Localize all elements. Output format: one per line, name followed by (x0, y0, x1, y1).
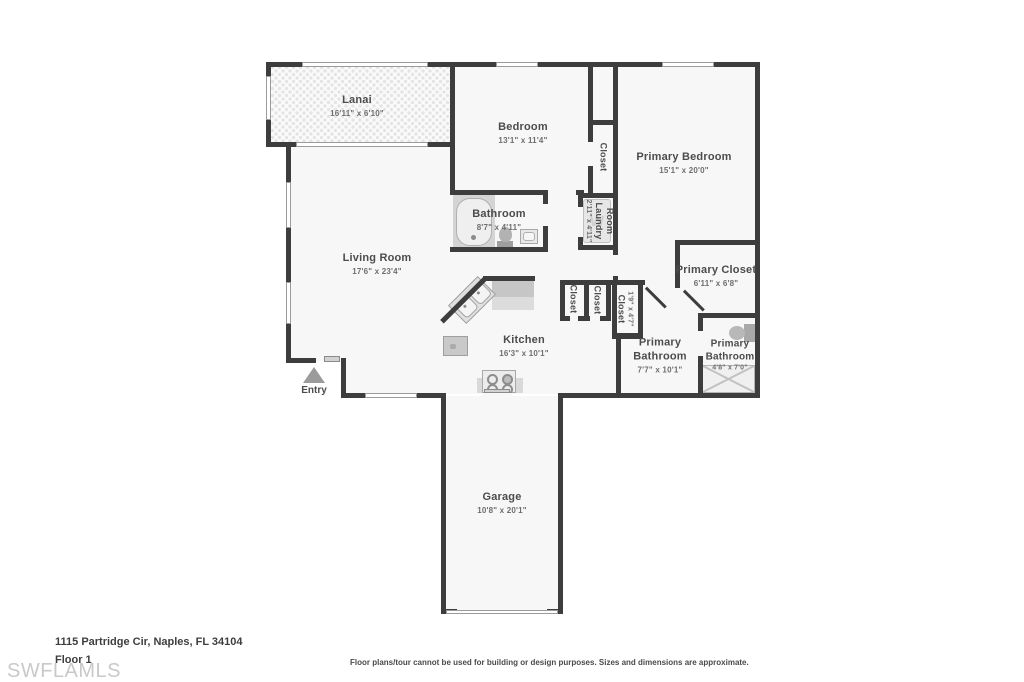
floor-plan-page: W Lanai 16'11" x 6'10" Bedroom 13'1" x 1… (0, 0, 1024, 682)
wall-segment (450, 190, 548, 195)
living-room-label: Living Room 17'6" x 23'4" (343, 252, 412, 276)
window (365, 393, 417, 398)
fridge-handle (450, 344, 456, 349)
tub-drain-icon (471, 235, 476, 240)
bedroom-closet-label: Closet (598, 143, 609, 172)
primary-bathroom-1-label: Primary Bathroom 7'7" x 10'1" (631, 336, 689, 374)
wall-segment (441, 393, 446, 614)
bedroom-label: Bedroom 13'1" x 11'4" (498, 121, 548, 145)
entry-arrow-icon (303, 367, 325, 383)
entry-label: Entry (301, 385, 327, 396)
wall-segment (578, 316, 590, 321)
wall-segment (560, 316, 570, 321)
door-leaf (484, 389, 510, 393)
hall-closet-3-label: 1'9" x 4'7" Closet (616, 291, 635, 327)
wall-segment (483, 276, 535, 281)
wall-segment (286, 142, 291, 363)
wall-segment (450, 247, 548, 252)
garage-label: Garage 10'8" x 20'1" (477, 491, 527, 515)
garage-door (446, 610, 558, 614)
wall-segment (450, 62, 455, 195)
mls-watermark: SWFLAMLS (7, 660, 121, 682)
door-opening (482, 393, 512, 398)
primary-bedroom-label: Primary Bedroom 15'1" x 20'0" (636, 151, 731, 175)
kitchen-counter (492, 297, 534, 310)
wall-segment (543, 226, 548, 252)
wall-segment (588, 166, 593, 195)
wall-segment (266, 142, 296, 147)
primary-closet-label: Primary Closet 6'11" x 6'8" (676, 264, 756, 288)
slider-door (296, 142, 428, 147)
wall-segment (600, 316, 611, 321)
window (286, 282, 291, 324)
window (496, 62, 538, 67)
kitchen-label: Kitchen 16'3" x 10'1" (499, 334, 549, 358)
wall-segment (700, 313, 760, 318)
wall-segment (584, 280, 589, 320)
lanai-label: Lanai 16'11" x 6'10" (330, 94, 384, 118)
laundry-room-label: Room Laundry 2'11" x 4'11" (585, 200, 615, 243)
wall-segment (543, 190, 548, 204)
entry-door-leaf (324, 356, 340, 362)
wall-segment (616, 333, 621, 393)
disclaimer-text: Floor plans/tour cannot be used for buil… (350, 658, 749, 667)
wall-segment (606, 280, 611, 320)
wall-segment (558, 393, 760, 398)
sink-icon (523, 232, 535, 241)
bathroom-label: Bathroom 8'7" x 4'11" (472, 208, 526, 232)
window (266, 76, 271, 120)
hall-closet-1-label: Closet (568, 285, 579, 314)
wall-segment (341, 358, 346, 398)
wall-segment (558, 393, 563, 614)
window (662, 62, 714, 67)
wall-segment (698, 313, 703, 331)
wall-segment (675, 240, 760, 245)
wall-segment (578, 193, 618, 198)
window (302, 62, 428, 67)
wall-segment (638, 280, 643, 338)
hall-closet-2-label: Closet (592, 286, 603, 315)
primary-bathroom-2-label: Primary Bathroom 4'8" x 7'0" (703, 339, 757, 372)
wall-segment (588, 62, 593, 142)
wall-segment (560, 280, 565, 320)
kitchen-counter (492, 281, 534, 297)
window (286, 182, 291, 228)
wall-segment (286, 358, 316, 363)
address-text: 1115 Partridge Cir, Naples, FL 34104 (55, 636, 243, 648)
wall-segment (578, 245, 618, 250)
